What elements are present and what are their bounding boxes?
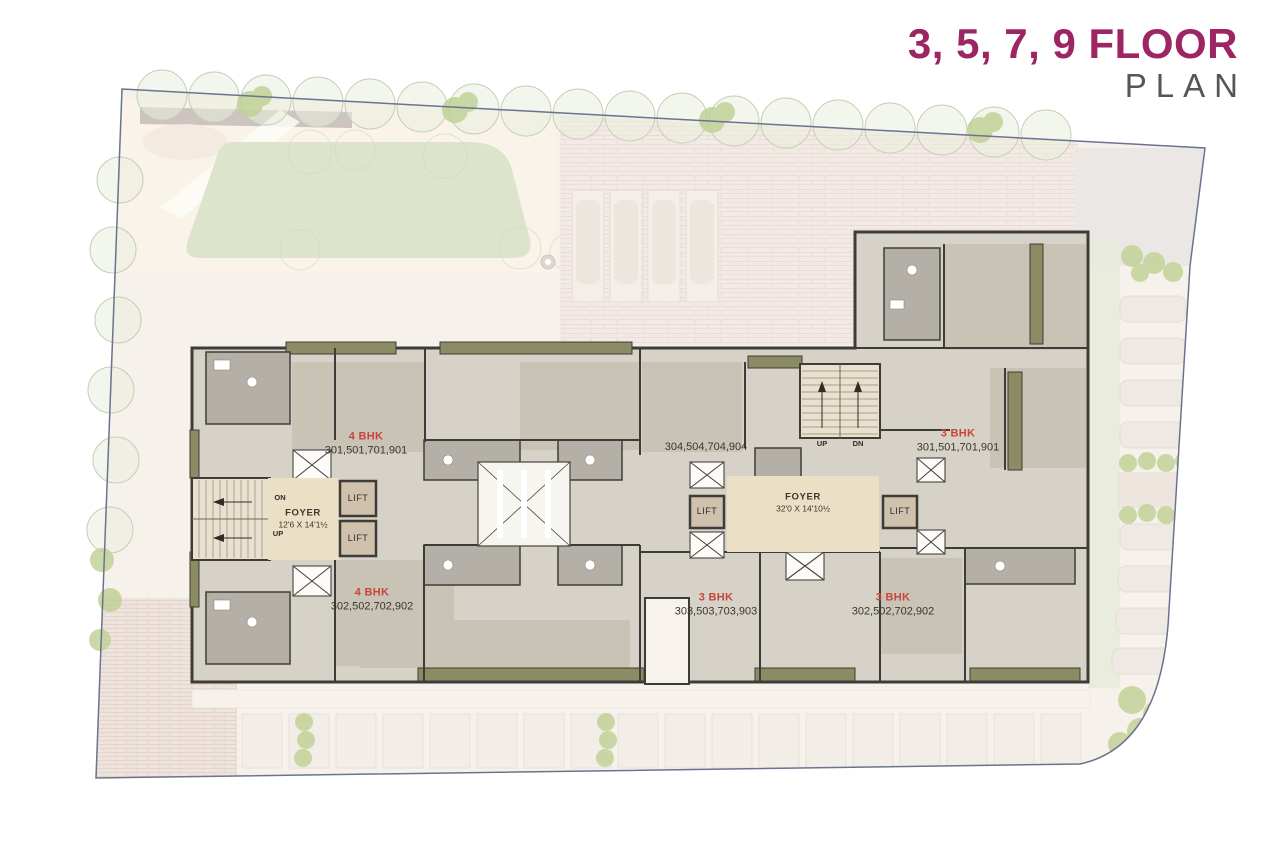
lift-label-left-2: LIFT [348,533,369,545]
park-pergola [143,124,227,160]
unit-type: 3 BHK [852,591,935,605]
title-plan-word: PLAN [908,69,1247,104]
unit-numbers: 301,501,701,901 [325,444,408,458]
stair-center-dn-label: DN [853,439,864,449]
foyer-label-left: FOYER 12'6 X 14'1½ [278,507,327,530]
unit-type: 3 BHK [675,591,758,605]
unit-numbers: 304,504,704,904 [665,440,748,454]
unit-label-bottom-right: 3 BHK 302,502,702,902 [852,591,935,620]
stair-left-top-label: ON [274,493,285,503]
lift-label-center-1: LIFT [697,506,718,518]
title-floors: 3, 5, 7, 9 FLOOR [908,22,1238,66]
unit-label-bottom-left: 4 BHK 302,502,702,902 [331,586,414,615]
floor-plan-page: 4 BHK 301,501,701,901 304,504,704,904 3 … [0,0,1280,853]
unit-numbers: 302,502,702,902 [331,600,414,614]
foyer-name: FOYER [776,491,830,503]
stair-left-bottom-label: UP [273,529,283,539]
lawn [187,142,531,258]
unit-label-top-right: 3 BHK 301,501,701,901 [917,427,1000,456]
foyer-name: FOYER [278,507,327,519]
unit-type: 4 BHK [325,430,408,444]
side-lawn-strip [1088,238,1120,688]
lift-label-left-1: LIFT [348,493,369,505]
foyer-label-center: FOYER 32'0 X 14'10½ [776,491,830,514]
unit-label-top-center: 304,504,704,904 [665,440,748,454]
stair-center [800,364,880,438]
unit-numbers: 302,502,702,902 [852,605,935,619]
page-title: 3, 5, 7, 9 FLOOR PLAN [908,22,1238,104]
walkway [192,690,1090,708]
unit-numbers: 301,501,701,901 [917,441,1000,455]
stair-left [192,478,270,560]
stair-center-up-label: UP [817,439,827,449]
lift-label-center-2: LIFT [890,506,911,518]
foyer-dims: 32'0 X 14'10½ [776,504,830,515]
light-well [478,462,570,546]
unit-type: 3 BHK [917,427,1000,441]
unit-numbers: 303,503,703,903 [675,605,758,619]
unit-label-top-left: 4 BHK 301,501,701,901 [325,430,408,459]
site-plan-drawing [0,0,1280,853]
foyer-dims: 12'6 X 14'1½ [278,520,327,531]
unit-label-bottom-center: 3 BHK 303,503,703,903 [675,591,758,620]
unit-type: 4 BHK [331,586,414,600]
manhole-center [545,259,551,265]
